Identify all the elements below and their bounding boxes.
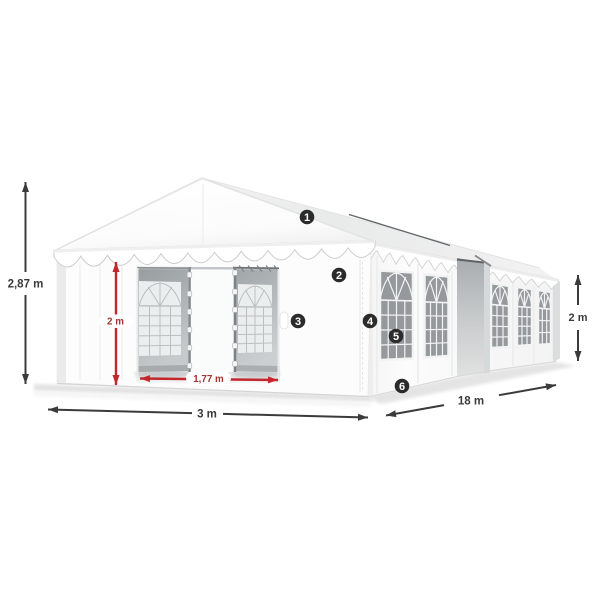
svg-text:2,87 m: 2,87 m: [8, 279, 44, 291]
svg-text:2 m: 2 m: [569, 312, 588, 324]
svg-text:5: 5: [393, 331, 399, 343]
svg-text:2 m: 2 m: [107, 317, 124, 328]
svg-text:6: 6: [399, 381, 405, 393]
svg-text:18 m: 18 m: [458, 396, 484, 408]
svg-text:2: 2: [336, 270, 342, 282]
svg-text:3: 3: [295, 316, 301, 328]
svg-text:1: 1: [304, 212, 310, 224]
svg-text:3 m: 3 m: [197, 409, 217, 421]
svg-text:1,77 m: 1,77 m: [193, 374, 224, 385]
svg-text:4: 4: [367, 316, 374, 328]
